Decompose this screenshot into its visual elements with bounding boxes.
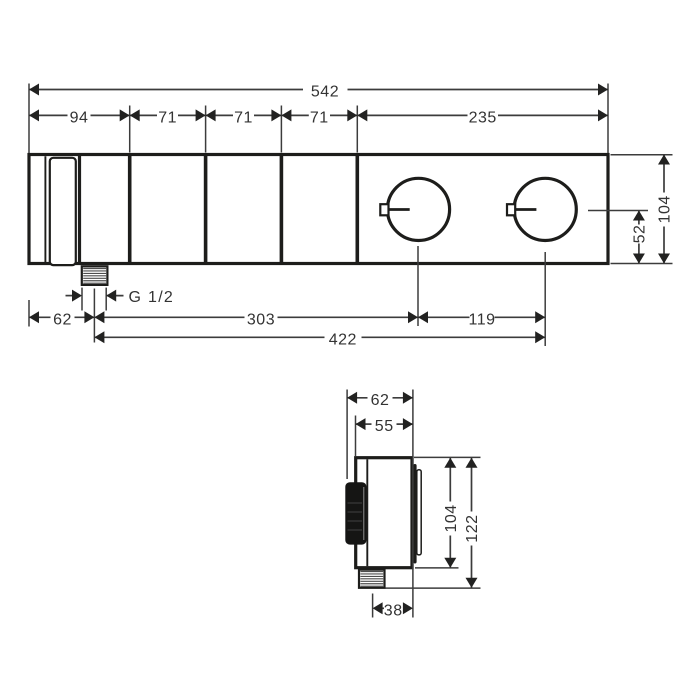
svg-text:122: 122 — [464, 514, 481, 542]
svg-text:303: 303 — [247, 311, 275, 328]
svg-text:104: 104 — [657, 195, 674, 223]
svg-text:71: 71 — [310, 109, 329, 126]
svg-text:38: 38 — [384, 602, 403, 619]
svg-text:G 1/2: G 1/2 — [129, 289, 175, 306]
svg-text:235: 235 — [469, 109, 497, 126]
svg-text:55: 55 — [375, 418, 394, 435]
svg-text:104: 104 — [443, 504, 460, 532]
svg-text:542: 542 — [311, 84, 339, 101]
svg-text:94: 94 — [70, 109, 89, 126]
svg-text:422: 422 — [329, 331, 357, 348]
svg-text:62: 62 — [371, 392, 390, 409]
svg-text:119: 119 — [468, 311, 495, 328]
svg-text:71: 71 — [234, 109, 253, 126]
svg-text:71: 71 — [158, 109, 177, 126]
svg-text:52: 52 — [632, 225, 649, 244]
svg-text:62: 62 — [53, 311, 72, 328]
